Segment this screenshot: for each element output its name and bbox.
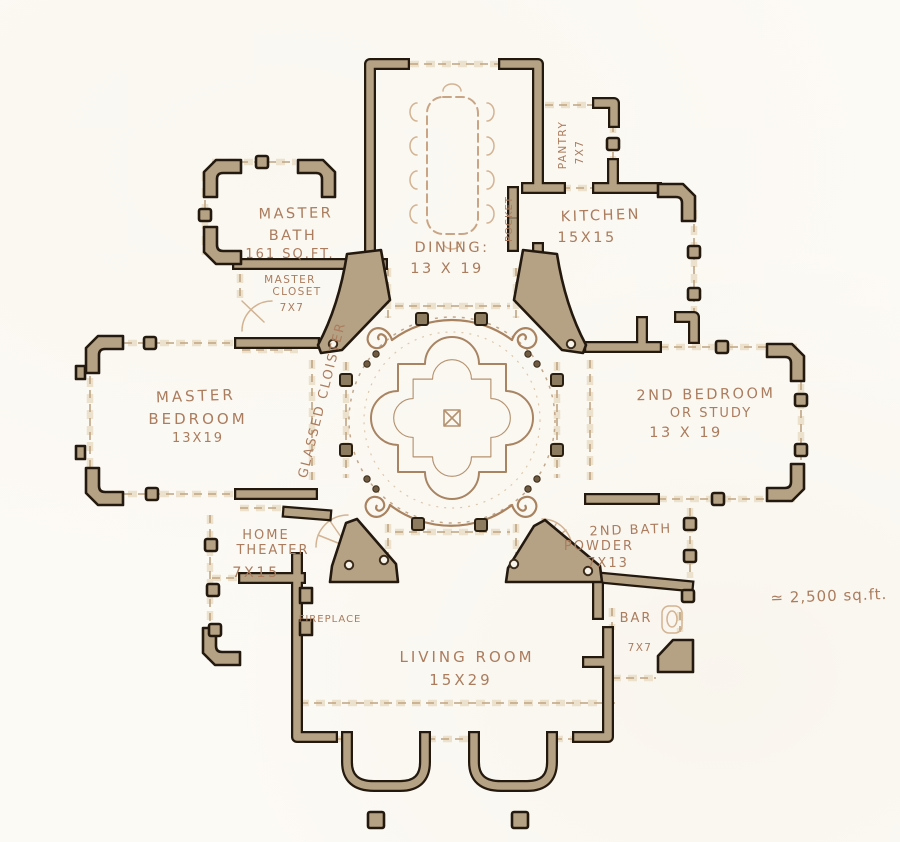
room-size: 15X15 [557,230,616,246]
corner-pier [767,344,804,381]
room-name: DINING: [414,240,489,256]
corner-pier [767,464,804,501]
room-size: 7X13 [587,556,629,571]
corner-pier [86,336,123,373]
room-name: CLOSET [272,286,321,298]
dining-chairs [410,84,494,249]
room-size: 7X7 [628,642,653,654]
room-size: 161 SQ.FT. [245,247,334,262]
label-bar: BAR 7X7 [620,611,653,654]
area-note: ≃ 2,500 sq.ft. [770,585,887,607]
corner-pier [204,160,241,197]
room-size: 13 X 19 [410,261,484,277]
label-pantry: PANTRY 7X7 [557,121,586,170]
room-name: BATH [269,228,318,244]
room-name: MASTER [264,274,316,286]
scroll-ne [510,324,540,354]
window-sill-nub [76,446,85,459]
label-master-bedroom: MASTER BEDROOM 13X19 [148,386,247,446]
label-fireplace: FIREPLACE [299,614,362,625]
room-name: HOME [242,528,289,543]
room-name: LIVING ROOM [399,648,534,666]
corner-pier [298,160,335,197]
label-second-bedroom: 2ND BEDROOM OR STUDY 13 X 19 [636,386,775,441]
room-name: BEDROOM [148,410,247,428]
label-kitchen: KITCHEN 15X15 [557,207,641,246]
room-size: 7X15 [232,565,280,581]
closet-door-arc [242,301,272,331]
label-master-bath: MASTER BATH 161 SQ.FT. [245,205,334,262]
floor-plan-canvas: MASTER BATH 161 SQ.FT. MASTER CLOSET 7X7… [0,0,900,842]
label-living-room: LIVING ROOM 15X29 [399,648,534,689]
room-size: 7X7 [574,140,586,165]
quatrefoil-centerpiece [371,337,533,499]
porch-post [512,812,528,828]
label-pocket-door: POCKET [504,196,515,242]
pier-bar-corner [658,640,693,672]
corner-pier [86,468,123,505]
corner-pier [658,184,695,221]
room-name: PANTRY [557,121,569,170]
feature-name: FIREPLACE [299,614,362,625]
room-name: KITCHEN [560,207,641,226]
window-sill-nub [76,366,85,379]
room-name: OR STUDY [670,406,752,421]
floor-plan-page: MASTER BATH 161 SQ.FT. MASTER CLOSET 7X7… [0,0,900,842]
room-name: 2ND BEDROOM [636,386,775,404]
scroll-se [510,491,540,521]
room-name: MASTER [258,205,333,222]
dining-table [410,84,494,249]
room-size: 15X29 [429,671,492,689]
room-name: 2ND BATH [589,522,672,540]
scroll-nw [364,324,394,354]
corner-pier [204,227,241,264]
room-size: 7X7 [280,302,305,314]
cloister-inner-ring [364,332,540,508]
feature-name: POCKET [504,196,515,242]
room-name: MASTER [156,386,236,407]
room-name: BAR [620,611,653,626]
cloister-column-dots [364,351,540,492]
room-name: THEATER [235,543,309,558]
label-master-closet: MASTER CLOSET 7X7 [264,274,321,314]
room-name: POWDER [564,539,634,554]
porch-post [368,812,384,828]
room-size: 13X19 [172,431,224,446]
room-size: 13 X 19 [649,425,723,441]
porch-posts [368,812,528,828]
cloister-rotunda [340,313,563,531]
cloister-scrolls [362,324,540,521]
scroll-sw [362,491,392,521]
label-dining: DINING: 13 X 19 [410,240,489,277]
label-total-area: ≃ 2,500 sq.ft. [770,585,887,607]
